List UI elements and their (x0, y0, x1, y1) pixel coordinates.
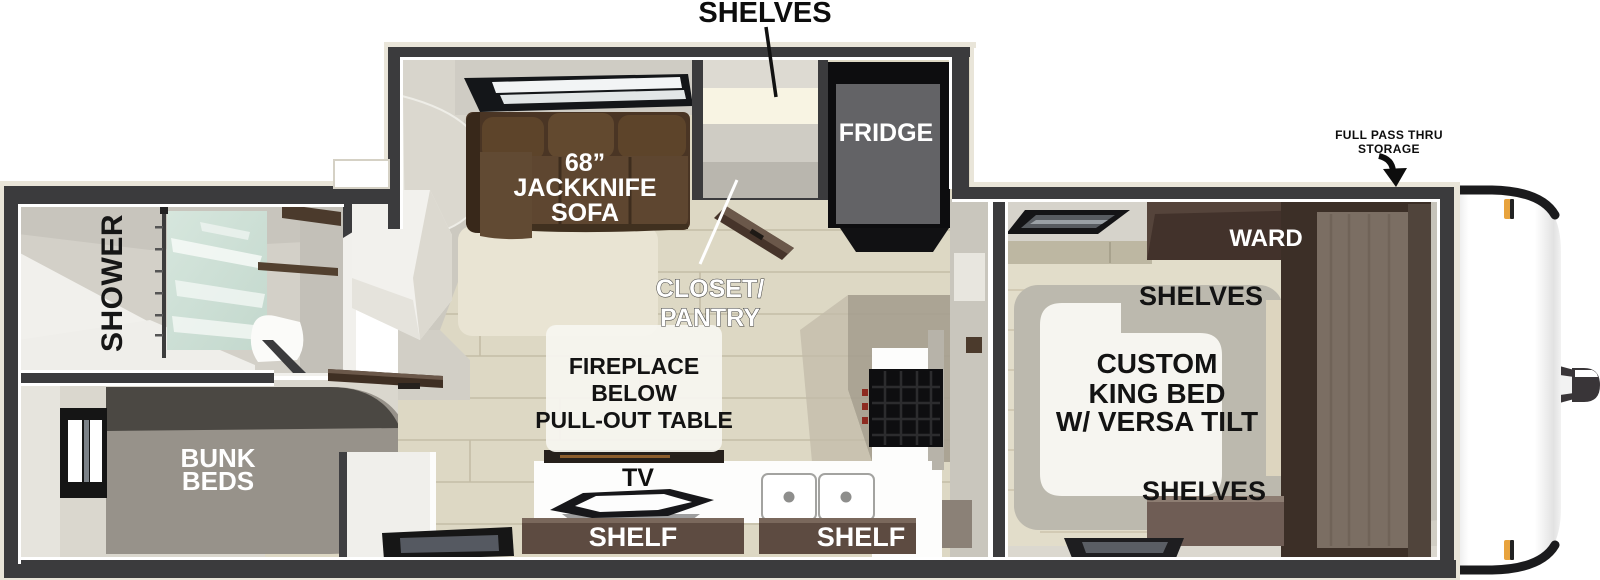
svg-text:CLOSET/: CLOSET/ (656, 275, 764, 303)
svg-text:FRIDGE: FRIDGE (839, 119, 933, 147)
svg-text:BELOW: BELOW (591, 380, 677, 406)
svg-text:SHELF: SHELF (589, 522, 678, 552)
svg-text:FIREPLACE: FIREPLACE (569, 353, 699, 379)
svg-text:SHELVES: SHELVES (1139, 281, 1263, 311)
svg-text:SOFA: SOFA (551, 199, 619, 227)
svg-text:SHELVES: SHELVES (1142, 476, 1266, 506)
svg-text:SHOWER: SHOWER (96, 214, 129, 352)
svg-text:STORAGE: STORAGE (1358, 142, 1420, 156)
svg-text:JACKKNIFE: JACKKNIFE (513, 174, 656, 202)
svg-text:BEDS: BEDS (182, 466, 254, 496)
svg-text:PULL-OUT TABLE: PULL-OUT TABLE (535, 407, 733, 433)
svg-text:W/ VERSA TILT: W/ VERSA TILT (1056, 406, 1258, 437)
svg-text:WARD: WARD (1229, 225, 1302, 252)
svg-text:KING BED: KING BED (1089, 378, 1226, 409)
svg-text:PANTRY: PANTRY (660, 304, 760, 332)
svg-text:CUSTOM: CUSTOM (1097, 348, 1218, 379)
svg-text:SHELVES: SHELVES (698, 0, 831, 29)
svg-text:TV: TV (622, 464, 654, 492)
svg-text:SHELF: SHELF (817, 522, 906, 552)
svg-text:68”: 68” (565, 149, 605, 177)
svg-text:FULL PASS THRU: FULL PASS THRU (1335, 128, 1443, 142)
